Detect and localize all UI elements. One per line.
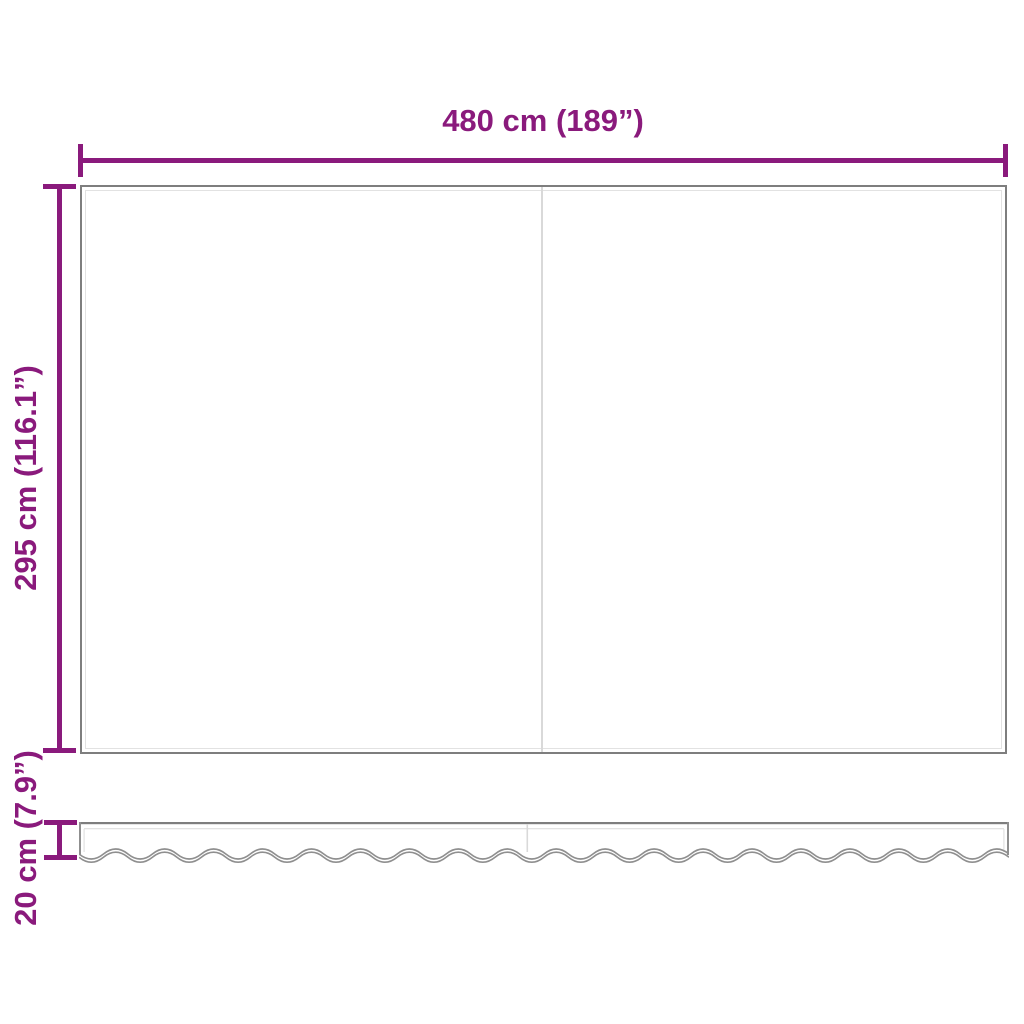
fabric-panel <box>80 185 1007 754</box>
fabric-panel-seam-line <box>541 187 543 752</box>
diagram-canvas: 480 cm (189”) 295 cm (116.1”) 20 cm (7.9… <box>0 0 1024 1024</box>
valance-inner-hem-line <box>84 828 1004 829</box>
valance-height-dimension-tick-bottom <box>44 855 77 860</box>
height-dimension-label: 295 cm (116.1”) <box>8 365 44 591</box>
width-dimension-tick-right <box>1003 144 1008 177</box>
valance-left-edge <box>79 822 81 855</box>
valance-right-inner-line <box>1003 829 1004 852</box>
valance-strip <box>79 821 1009 869</box>
fabric-panel-inner-hem-line <box>85 190 1002 749</box>
height-dimension-tick-top <box>43 184 76 189</box>
valance-height-dimension-line <box>57 822 62 859</box>
valance-height-dimension-label: 20 cm (7.9”) <box>8 750 44 926</box>
valance-left-inner-line <box>84 829 85 852</box>
valance-top-edge <box>79 822 1009 824</box>
valance-height-dimension-tick-top <box>44 820 77 825</box>
width-dimension-line <box>80 158 1006 163</box>
width-dimension-tick-left <box>78 144 83 177</box>
valance-right-edge <box>1007 822 1009 855</box>
height-dimension-line <box>57 186 62 753</box>
valance-seam-line <box>527 824 529 852</box>
height-dimension-tick-bottom <box>43 748 76 753</box>
width-dimension-label: 480 cm (189”) <box>442 103 644 139</box>
